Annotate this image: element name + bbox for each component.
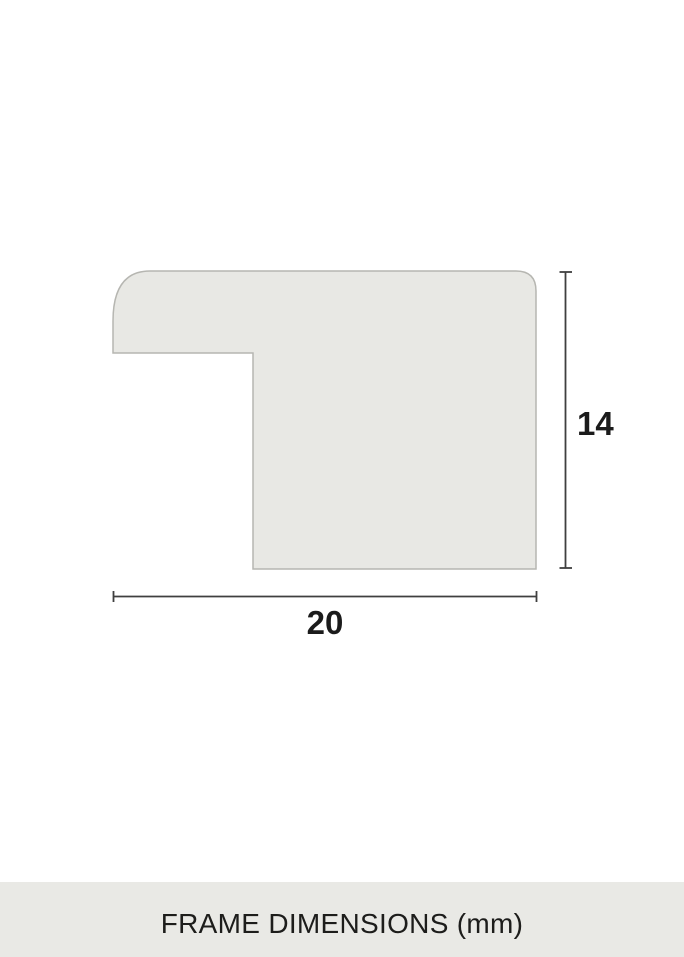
profile-drawing [0, 0, 684, 957]
height-dimension-line [560, 272, 573, 568]
width-dimension-label: 20 [285, 606, 365, 639]
caption-text: FRAME DIMENSIONS (mm) [161, 908, 524, 940]
width-dimension-line [114, 591, 537, 602]
height-dimension-label: 14 [577, 407, 614, 440]
profile-diagram: 14 20 [0, 0, 684, 957]
caption-bar: FRAME DIMENSIONS (mm) [0, 882, 684, 957]
frame-dimensions-view: 14 20 FRAME DIMENSIONS (mm) [0, 0, 684, 957]
frame-profile-shape [113, 271, 536, 569]
